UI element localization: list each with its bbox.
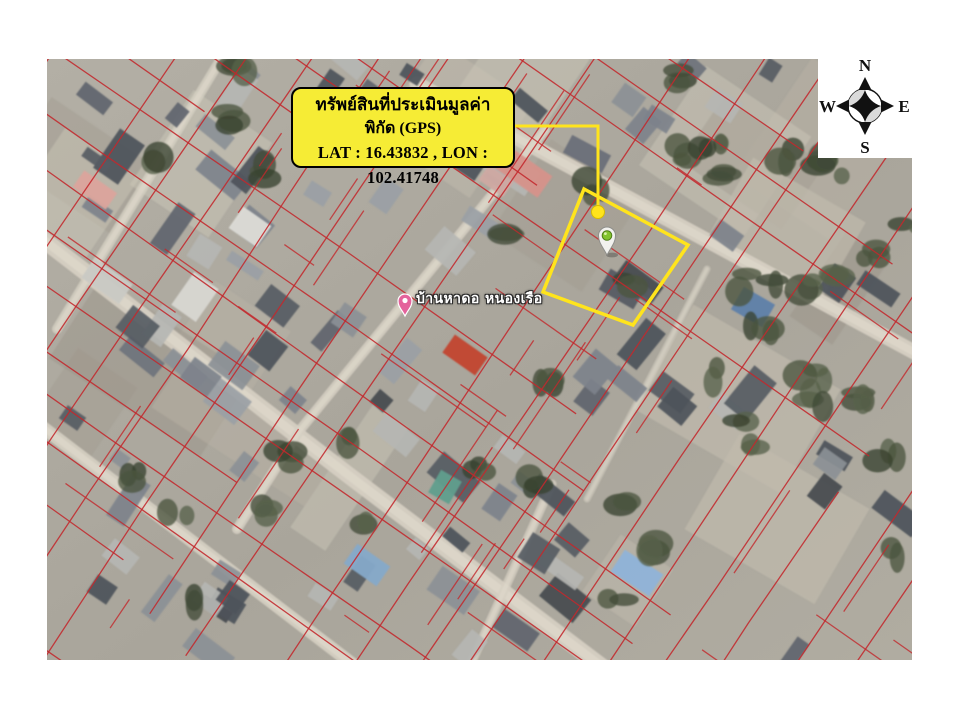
callout-box: ทรัพย์สินที่ประเมินมูลค่า พิกัด (GPS) LA…	[291, 87, 515, 168]
callout-subtitle: พิกัด (GPS)	[293, 117, 513, 140]
callout-title: ทรัพย์สินที่ประเมินมูลค่า	[293, 92, 513, 117]
south-arrow-icon	[859, 122, 872, 135]
compass-south-label: S	[818, 139, 912, 156]
place-label: บ้านหาดอ หนองเรือ	[416, 288, 543, 310]
marker-dot	[592, 206, 605, 219]
north-arrow-icon	[859, 77, 872, 90]
west-arrow-icon	[836, 100, 849, 113]
callout-coordinates: LAT : 16.43832 , LON : 102.41748	[293, 140, 513, 190]
compass-rose: N S W E	[818, 56, 912, 158]
compass-east-label: E	[896, 98, 912, 115]
east-arrow-icon	[881, 100, 894, 113]
compass-west-label: W	[819, 98, 835, 115]
compass-north-label: N	[818, 57, 912, 74]
map-satellite-view: บ้านหาดอ หนองเรือ ทรัพย์สินที่ประเมินมูล…	[47, 59, 912, 660]
report-slide: บ้านหาดอ หนองเรือ ทรัพย์สินที่ประเมินมูล…	[0, 0, 960, 720]
